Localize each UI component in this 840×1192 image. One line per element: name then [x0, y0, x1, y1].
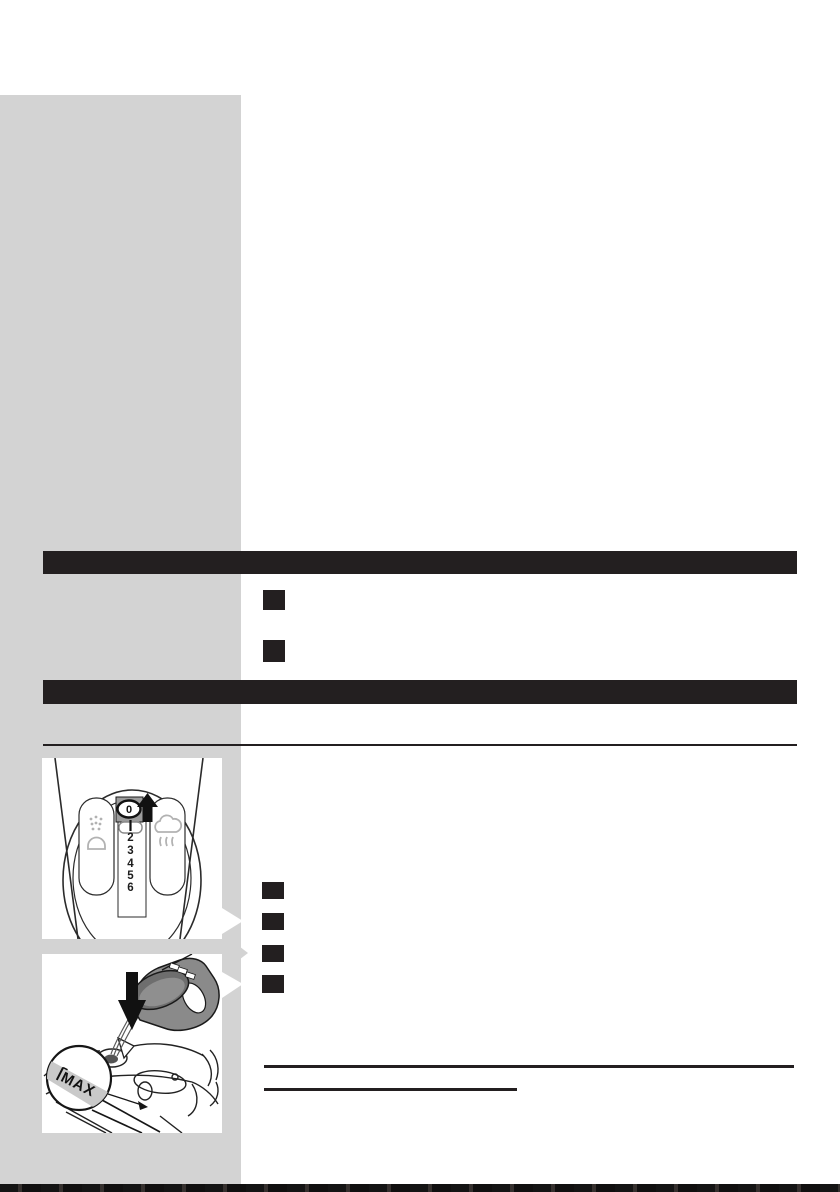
underline-rule-short [264, 1088, 517, 1091]
figure-fill-water: MAX [42, 954, 222, 1133]
figure-steam-dial: 0 2 3 4 5 6 [42, 758, 222, 939]
dial-number: 6 [127, 882, 133, 894]
manual-page: 0 2 3 4 5 6 [0, 0, 840, 1192]
step-marker [262, 945, 284, 962]
dial-number: 4 [127, 858, 134, 870]
gray-callout-arrow [222, 933, 248, 973]
step-marker [262, 882, 284, 899]
figure1-callout-arrow [222, 908, 243, 934]
spray-button-pill [79, 798, 114, 895]
dial-selected-number: 0 [126, 804, 132, 816]
step-marker [263, 640, 285, 662]
max-indicator: MAX [42, 1046, 160, 1133]
dial-number: 3 [127, 845, 133, 857]
water-cup [126, 954, 219, 1030]
steam-button-pill [150, 798, 185, 895]
dial-number: 5 [127, 870, 134, 882]
dial-number: 2 [127, 832, 133, 844]
figure2-callout-arrow [222, 972, 243, 998]
divider-rule [43, 744, 797, 746]
section-header-bar-top [43, 551, 797, 574]
step-marker [263, 590, 285, 610]
steam-dial-illustration: 0 2 3 4 5 6 [42, 758, 222, 939]
page-bottom-edge [0, 1184, 840, 1192]
section-header-bar-main [43, 680, 797, 704]
step-marker [262, 913, 284, 930]
fill-water-illustration: MAX [42, 954, 222, 1133]
figure-callout-arrows [222, 900, 252, 1010]
step-marker [262, 975, 284, 993]
underline-rule-long [264, 1065, 794, 1068]
